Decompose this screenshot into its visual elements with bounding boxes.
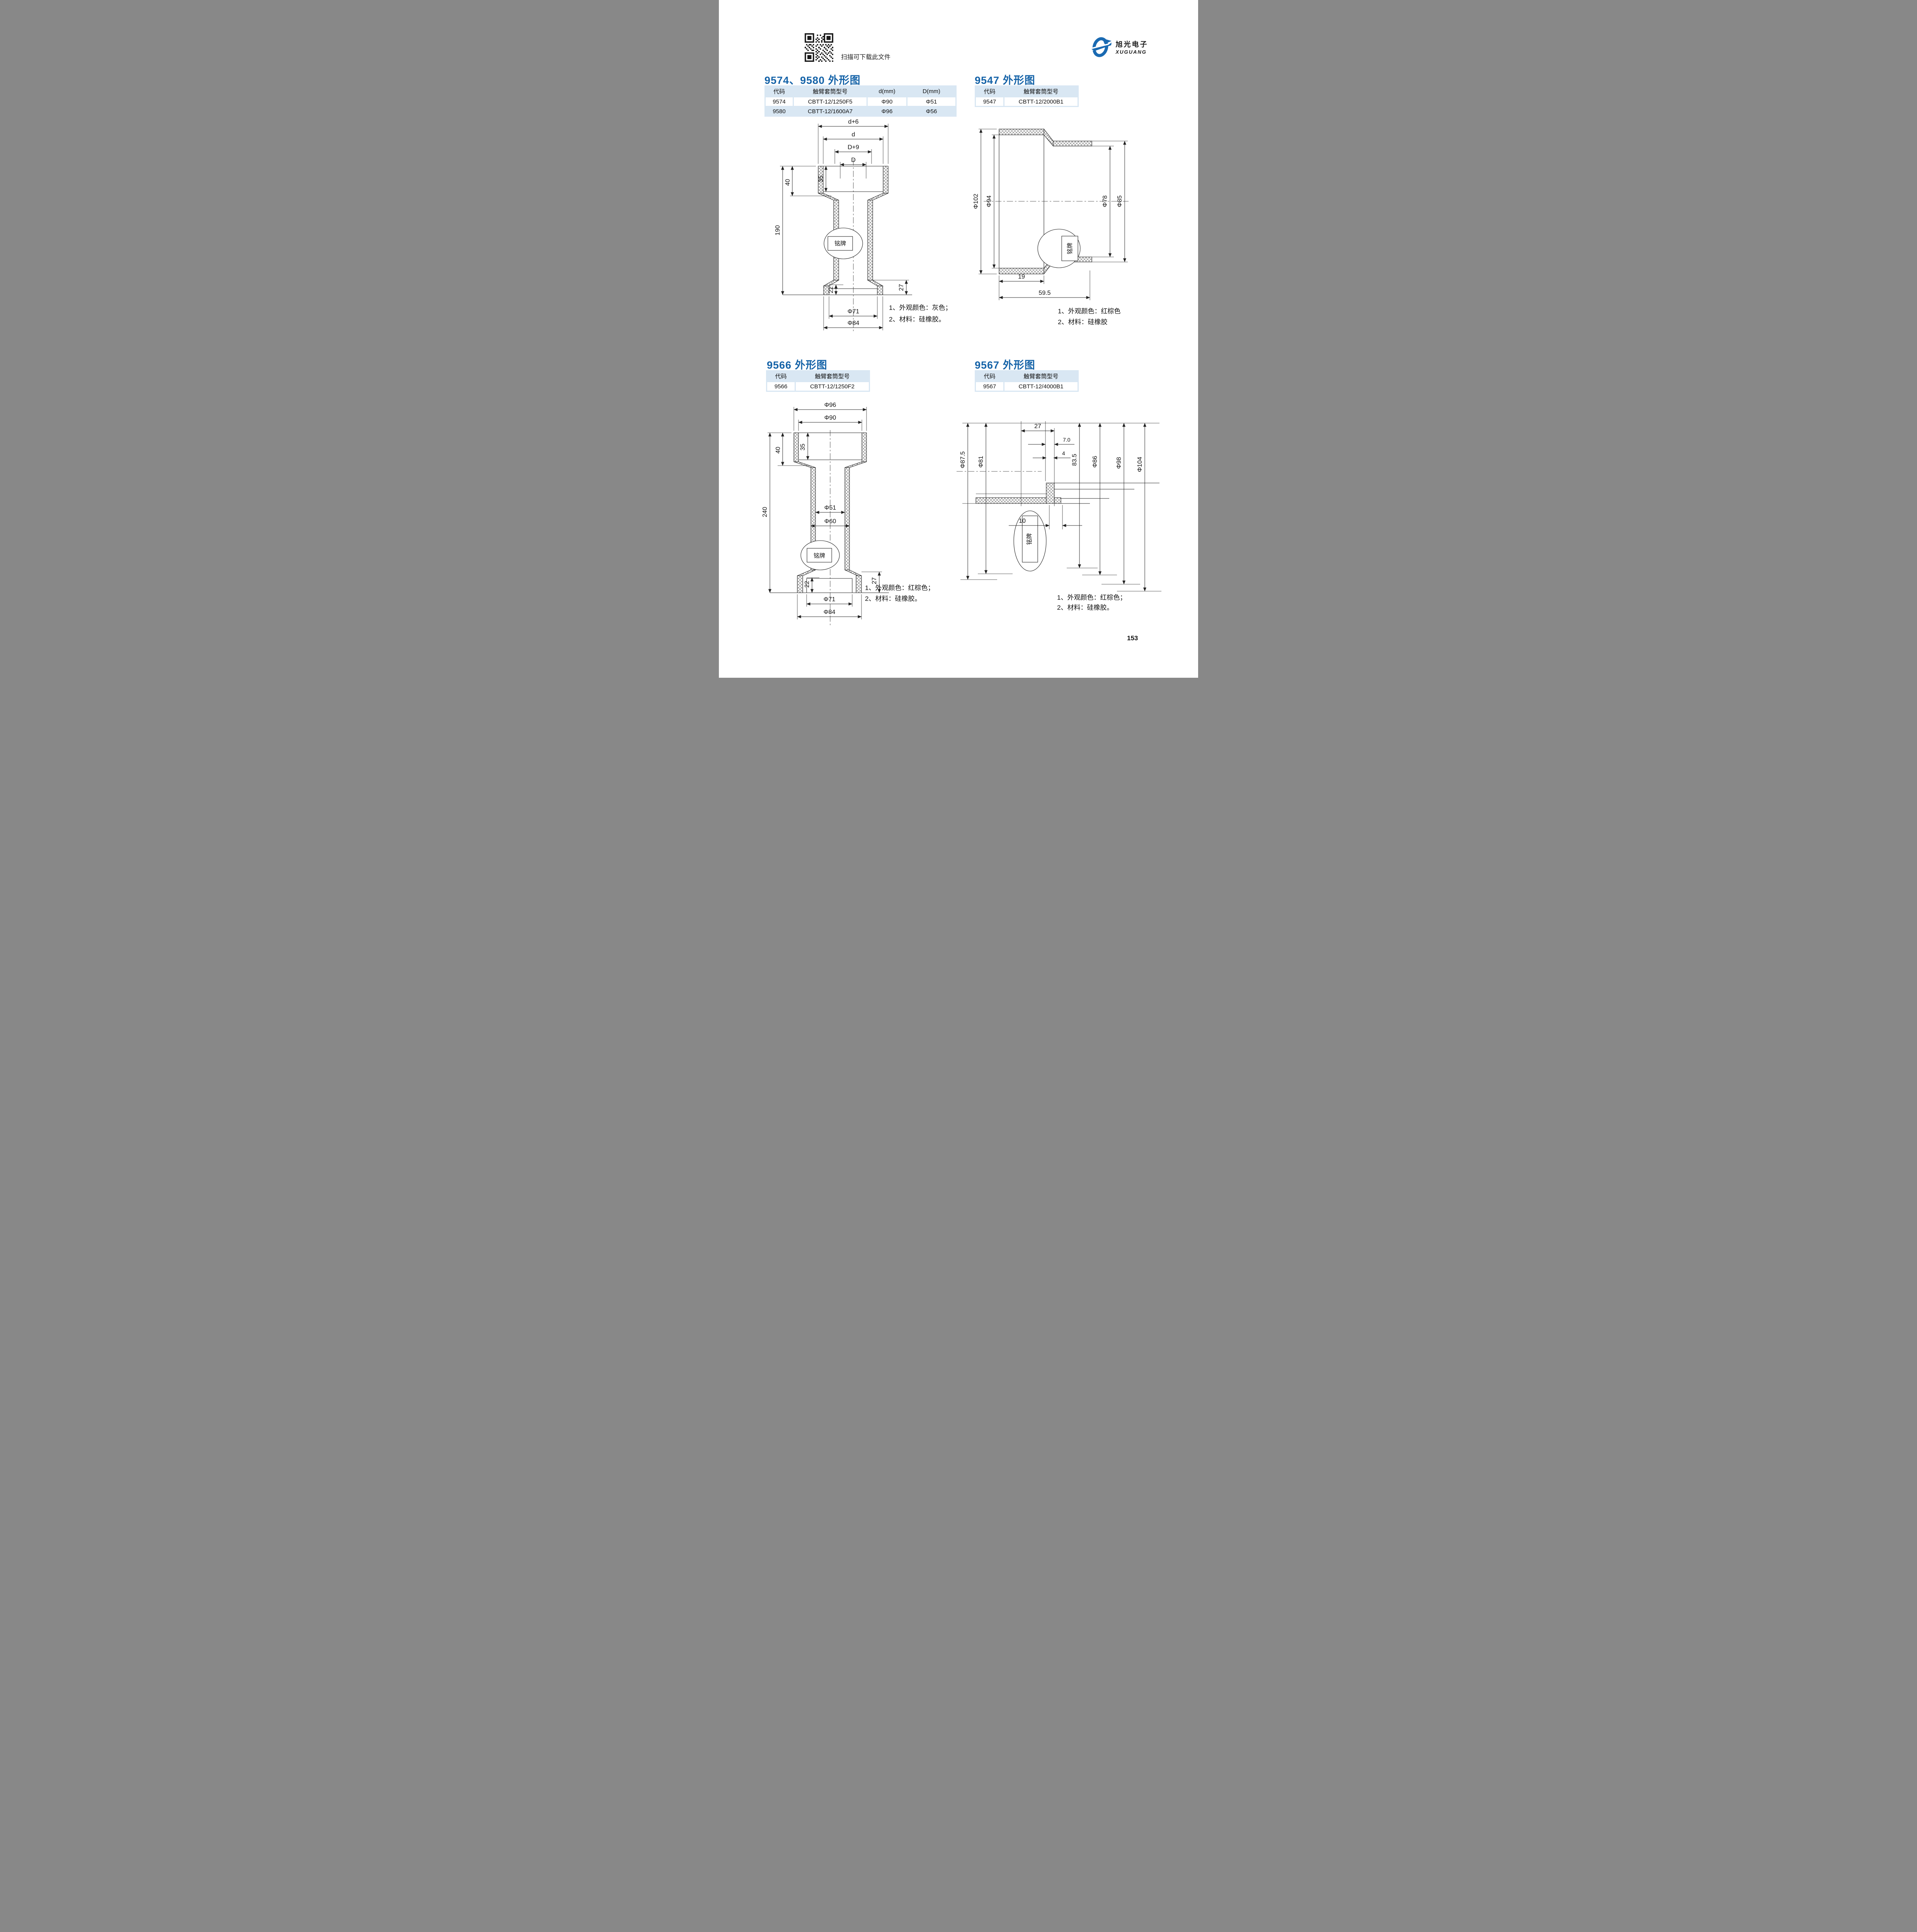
note-line: 1、外观颜色：红棕色；	[1057, 594, 1126, 601]
cell-model: CBTT-12/1600A7	[794, 107, 867, 116]
note-line: 2、材料：硅橡胶。	[889, 316, 945, 323]
drawing-notes: 1、外观颜色：红棕色； 2、材料：硅橡胶。	[1057, 594, 1126, 611]
dim-label: Φ84	[848, 320, 860, 327]
spec-table-9567: 代码 触臂套筒型号 9567 CBTT-12/4000B1	[975, 370, 1079, 392]
dim-label: 10	[1019, 518, 1026, 524]
cell-code: 9547	[976, 97, 1003, 106]
dim-label: D+9	[848, 144, 859, 151]
logo-name-en: XUGUANG	[1115, 49, 1148, 55]
cell-D: Φ51	[907, 97, 955, 106]
dim-label: 83.5	[1071, 454, 1078, 466]
section-title-9547: 9547 外形图	[975, 72, 1035, 87]
cell-d: Φ90	[868, 97, 906, 106]
spec-table-9566: 代码 触臂套筒型号 9566 CBTT-12/1250F2	[766, 370, 870, 392]
page-number: 153	[1127, 634, 1138, 642]
spec-table-9574-9580: 代码 触臂套筒型号 d(mm) D(mm) 9574 CBTT-12/1250F…	[764, 85, 957, 117]
dim-label: Φ96	[824, 402, 836, 408]
section-title-9574-9580: 9574、9580 外形图	[764, 72, 861, 87]
dim-label: Φ81	[978, 456, 984, 468]
dim-label: 240	[762, 507, 768, 517]
dim-label: 22	[804, 581, 810, 588]
spec-table-9547: 代码 触臂套筒型号 9547 CBTT-12/2000B1	[975, 85, 1079, 107]
dim-label: 190	[775, 225, 781, 236]
col-header: 代码	[976, 371, 1003, 381]
qr-code	[805, 33, 833, 62]
dim-label: Φ98	[1116, 457, 1122, 469]
note-line: 1、外观颜色：灰色；	[889, 304, 952, 311]
dim-label: Φ71	[848, 308, 860, 315]
section-title-9566: 9566 外形图	[767, 357, 827, 372]
nameplate-label: 铭牌	[1026, 533, 1033, 545]
dim-label: 27	[898, 284, 905, 291]
dim-label: Φ86	[1092, 456, 1098, 468]
dim-label: Φ84	[824, 609, 836, 616]
dim-label: 27	[871, 577, 878, 584]
dim-label: 59.5	[1039, 290, 1050, 296]
dim-label: 22	[828, 286, 834, 293]
drawing-notes: 1、外观颜色：红棕色 2、材料：硅橡胶	[1058, 308, 1120, 326]
table-row: 9547 CBTT-12/2000B1	[976, 97, 1078, 106]
col-header: 代码	[767, 371, 795, 381]
dim-label: d	[852, 131, 855, 138]
dim-label: Φ87.5	[960, 451, 966, 468]
dim-label: 4	[1062, 450, 1065, 456]
part-cross-section	[770, 433, 889, 593]
dim-label: 40	[785, 179, 791, 186]
drawing-notes: 1、外观颜色：灰色； 2、材料：硅橡胶。	[889, 304, 952, 323]
cell-model: CBTT-12/2000B1	[1004, 97, 1078, 106]
dimensions: d+6 d D+9 D 40 35 190 22 27 Φ71	[775, 119, 909, 330]
dim-label: 27	[1034, 423, 1041, 430]
outline-drawing-9574-9580: 铭牌 d+6 d D+9 D 40 35 190 22	[773, 116, 955, 336]
cell-code: 9567	[976, 382, 1003, 391]
cell-code: 9574	[766, 97, 793, 106]
dim-label: Φ102	[973, 194, 979, 209]
cell-code: 9580	[766, 107, 793, 116]
nameplate-callout: 铭牌	[801, 541, 839, 570]
drawing-notes: 1、外观颜色：红棕色； 2、材料：硅橡胶。	[865, 584, 934, 602]
part-cross-section	[962, 421, 1159, 506]
dim-label: Φ71	[824, 596, 836, 603]
col-header: 代码	[766, 87, 793, 96]
dimensions: Φ102 Φ94 Φ78 Φ85 19 59.5	[973, 129, 1125, 300]
table-row: 9566 CBTT-12/1250F2	[767, 382, 869, 391]
cell-d: Φ96	[868, 107, 906, 116]
cell-D: Φ56	[907, 107, 955, 116]
outline-drawing-9566: 铭牌 Φ96 Φ90 40 35 240 Φ51 Φ60 22 27	[761, 396, 955, 628]
dim-label: 35	[800, 444, 806, 451]
logo-mark-icon	[1091, 36, 1112, 57]
logo: 旭光电子 XUGUANG	[1091, 36, 1148, 57]
cell-model: CBTT-12/1250F5	[794, 97, 867, 106]
note-line: 2、材料：硅橡胶。	[865, 595, 921, 602]
page: 扫描可下载此文件 旭光电子 XUGUANG 9574、9580 外形图 9547…	[719, 0, 1198, 678]
nameplate-label: 铭牌	[1067, 243, 1073, 254]
cell-code: 9566	[767, 382, 795, 391]
scan-hint-text: 扫描可下载此文件	[841, 52, 890, 61]
dim-label: D	[851, 157, 856, 163]
dim-label: d+6	[848, 119, 858, 125]
note-line: 2、材料：硅橡胶	[1058, 318, 1107, 326]
table-header-row: 代码 触臂套筒型号	[767, 371, 869, 381]
table-row: 9580 CBTT-12/1600A7 Φ96 Φ56	[766, 107, 955, 116]
col-header: 触臂套筒型号	[1004, 87, 1078, 96]
dim-label: Φ51	[824, 505, 836, 511]
dim-label: Φ60	[824, 518, 836, 525]
nameplate-label: 铭牌	[834, 240, 846, 247]
note-line: 1、外观颜色：红棕色	[1058, 308, 1120, 315]
dim-label: 40	[775, 447, 781, 454]
table-header-row: 代码 触臂套筒型号	[976, 87, 1078, 96]
col-header: 代码	[976, 87, 1003, 96]
dim-label: Φ85	[1117, 196, 1123, 207]
note-line: 2、材料：硅橡胶。	[1057, 604, 1113, 611]
table-header-row: 代码 触臂套筒型号	[976, 371, 1078, 381]
dim-label: Φ90	[824, 415, 836, 421]
logo-name-cn: 旭光电子	[1115, 39, 1148, 49]
table-row: 9567 CBTT-12/4000B1	[976, 382, 1078, 391]
col-header: d(mm)	[868, 87, 906, 96]
cell-model: CBTT-12/4000B1	[1004, 382, 1078, 391]
col-header: D(mm)	[907, 87, 955, 96]
col-header: 触臂套筒型号	[796, 371, 869, 381]
table-header-row: 代码 触臂套筒型号 d(mm) D(mm)	[766, 87, 955, 96]
cell-model: CBTT-12/1250F2	[796, 382, 869, 391]
dim-label: 35	[818, 175, 824, 182]
note-line: 1、外观颜色：红棕色；	[865, 584, 934, 592]
nameplate-callout: 铭牌	[1038, 229, 1080, 268]
dim-label: 7.0	[1063, 437, 1071, 443]
col-header: 触臂套筒型号	[1004, 371, 1078, 381]
nameplate-label: 铭牌	[814, 553, 825, 559]
table-row: 9574 CBTT-12/1250F5 Φ90 Φ51	[766, 97, 955, 106]
dimensions: 27 7.0 4 10 Φ87.5 Φ81 83.5 Φ86 Φ98 Φ104	[960, 423, 1161, 591]
dim-label: Φ104	[1137, 457, 1143, 472]
nameplate-callout: 铭牌	[824, 228, 863, 259]
dim-label: Φ78	[1102, 196, 1108, 207]
outline-drawing-9567: 铭牌 27 7.0 4 10 Φ87.5 Φ81 83.5 Φ86 Φ98	[951, 413, 1167, 611]
outline-drawing-9547: 铭牌 Φ102 Φ94 Φ78 Φ85 19 59.5 1、外观颜色：红棕色 2…	[962, 122, 1159, 330]
dim-label: Φ94	[986, 196, 993, 207]
section-title-9567: 9567 外形图	[975, 357, 1035, 372]
col-header: 触臂套筒型号	[794, 87, 867, 96]
dim-label: 19	[1018, 274, 1025, 280]
